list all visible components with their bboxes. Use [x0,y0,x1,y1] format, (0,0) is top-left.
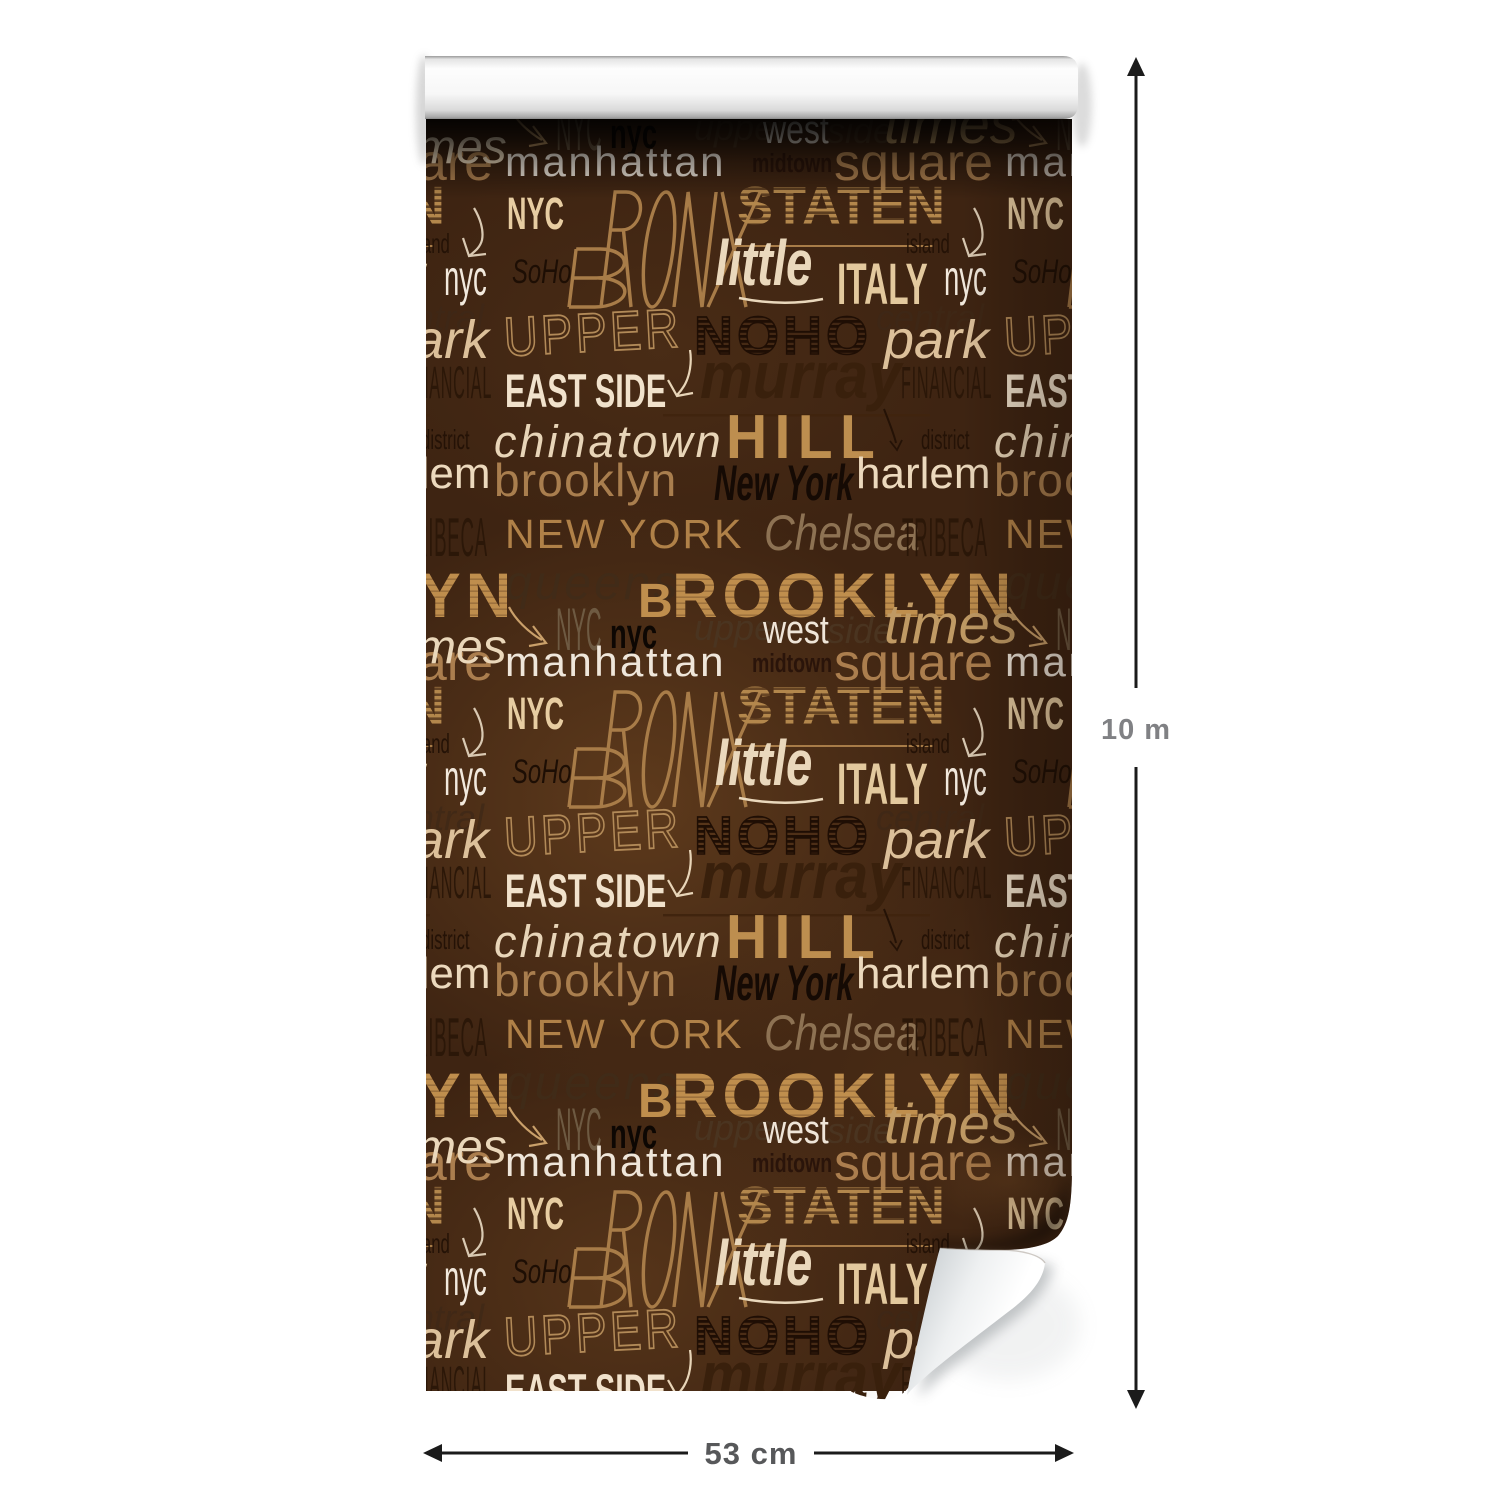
svg-text:53 cm: 53 cm [705,1436,798,1471]
svg-text:10 m: 10 m [1101,714,1171,746]
